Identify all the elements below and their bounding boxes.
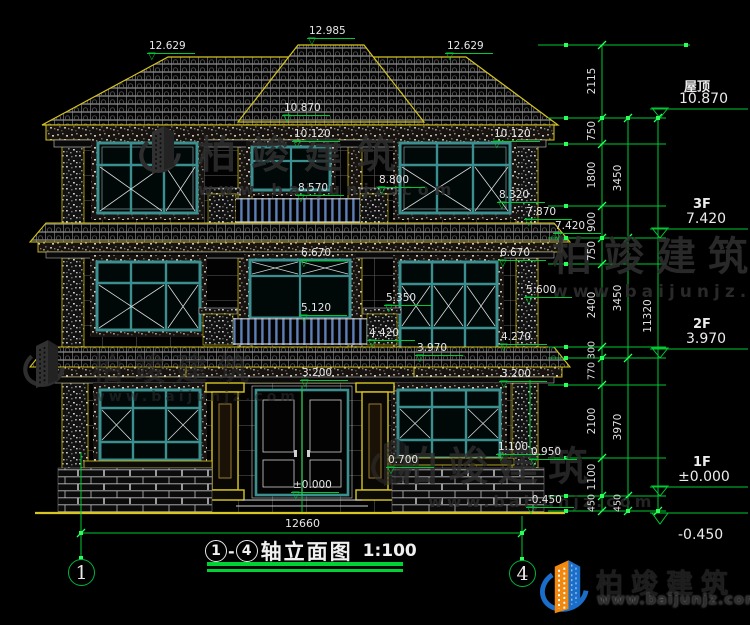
elevation-triangle-icon: ▽ xyxy=(554,234,601,240)
dim-inner: 770 xyxy=(587,362,598,380)
level-value-2f: 3.970 xyxy=(686,331,726,347)
house-elevation-canvas xyxy=(0,0,750,625)
elevation-mark: 3.970▽ xyxy=(415,340,463,362)
elevation-triangle-icon: ▽ xyxy=(283,116,330,122)
watermark: 柏竣建筑 www.baijunjz.com xyxy=(92,344,299,405)
dim-inner: 2400 xyxy=(586,292,598,319)
elevation-mark: 4.420▽ xyxy=(367,325,415,347)
elevation-mark: ±0.000▽ xyxy=(291,477,339,499)
elevation-triangle-icon: ▽ xyxy=(387,468,434,474)
elevation-mark: 5.350▽ xyxy=(384,290,432,312)
elevation-triangle-icon: ▽ xyxy=(499,261,546,267)
elevation-triangle-icon: ▽ xyxy=(500,382,547,388)
elevation-mark: 6.670▽ xyxy=(299,245,347,267)
title-scale: 1:100 xyxy=(363,541,417,561)
elevation-triangle-icon: ▽ xyxy=(292,493,339,499)
overall-dimension: 12660 xyxy=(285,517,320,530)
level-label-1f: 1F xyxy=(693,455,711,470)
brand-logo-icon xyxy=(537,560,592,615)
dim-inner: 2100 xyxy=(586,408,598,435)
elevation-triangle-icon: ▽ xyxy=(300,316,347,322)
elevation-triangle-icon: ▽ xyxy=(385,306,432,312)
elevation-mark: 10.870▽ xyxy=(282,100,330,122)
level-value-roof: 10.870 xyxy=(679,91,728,107)
elevation-triangle-icon: ▽ xyxy=(293,142,340,148)
dim-middle: 3450 xyxy=(612,285,624,312)
elevation-mark: 8.800▽ xyxy=(377,172,425,194)
elevation-mark: 12.985▽ xyxy=(307,23,355,45)
dim-inner: 2115 xyxy=(586,68,598,95)
elevation-triangle-icon: ▽ xyxy=(300,261,347,267)
dim-inner: 900 xyxy=(586,212,598,232)
elevation-mark: 5.600▽ xyxy=(524,282,572,304)
elevation-mark: 8.570▽ xyxy=(296,180,344,202)
dim-inner: 750 xyxy=(586,121,598,141)
dim-middle: 3970 xyxy=(612,414,624,441)
elevation-triangle-icon: ▽ xyxy=(148,54,195,60)
elevation-triangle-icon: ▽ xyxy=(416,356,463,362)
axis-bubble-1: 1 xyxy=(68,559,95,586)
dim-middle: 450 xyxy=(613,494,624,512)
elevation-mark: -0.450▽ xyxy=(526,492,574,514)
title-dash: - xyxy=(228,542,235,561)
level-value-3f: 7.420 xyxy=(686,211,726,227)
title-underline xyxy=(207,562,403,566)
elevation-triangle-icon: ▽ xyxy=(493,142,540,148)
elevation-mark: 0.950▽ xyxy=(529,444,577,466)
level-value-minus450: -0.450 xyxy=(678,527,723,543)
level-label-3f: 3F xyxy=(693,197,711,212)
elevation-triangle-icon: ▽ xyxy=(301,381,348,387)
elevation-triangle-icon: ▽ xyxy=(446,54,493,60)
brand-logo-url: www.baijunjz.com xyxy=(597,592,750,608)
elevation-triangle-icon: ▽ xyxy=(297,196,344,202)
title-underline xyxy=(207,569,403,572)
elevation-triangle-icon: ▽ xyxy=(368,341,415,347)
dim-inner: 300 xyxy=(587,341,598,359)
title-axis-start-bubble: 1 xyxy=(205,540,227,562)
watermark-url: www.baijunjz.com xyxy=(92,389,299,405)
elevation-triangle-icon: ▽ xyxy=(527,508,574,514)
watermark-brand: 柏竣建筑 xyxy=(92,344,299,389)
elevation-triangle-icon: ▽ xyxy=(378,188,425,194)
elevation-triangle-icon: ▽ xyxy=(500,345,547,351)
elevation-mark: 5.120▽ xyxy=(299,300,347,322)
axis-bubble-4: 4 xyxy=(509,560,536,587)
elevation-triangle-icon: ▽ xyxy=(530,460,577,466)
elevation-mark: 3.200▽ xyxy=(300,365,348,387)
elevation-mark: 6.670▽ xyxy=(498,245,546,267)
dim-inner: 750 xyxy=(586,241,598,261)
level-label-2f: 2F xyxy=(693,317,711,332)
dim-inner: 1800 xyxy=(586,162,598,189)
dim-outer: 11320 xyxy=(642,299,654,332)
dim-inner: 1100 xyxy=(586,464,598,491)
level-value-1f: ±0.000 xyxy=(678,469,730,485)
cad-elevation-drawing: 柏竣建筑 www.baijunjz.com 柏竣建筑 www.baijunjz.… xyxy=(0,0,750,625)
elevation-mark: 4.270▽ xyxy=(499,329,547,351)
elevation-mark: 12.629▽ xyxy=(147,38,195,60)
title-axis-end-bubble: 4 xyxy=(236,540,258,562)
elevation-mark: 0.700▽ xyxy=(386,452,434,474)
dim-inner: 450 xyxy=(587,494,598,512)
dim-middle: 3450 xyxy=(612,165,624,192)
elevation-mark: 3.200▽ xyxy=(499,366,547,388)
elevation-mark: 10.120▽ xyxy=(492,126,540,148)
elevation-mark: 12.629▽ xyxy=(445,38,493,60)
elevation-triangle-icon: ▽ xyxy=(308,39,355,45)
elevation-triangle-icon: ▽ xyxy=(525,298,572,304)
elevation-mark: 10.120▽ xyxy=(292,126,340,148)
